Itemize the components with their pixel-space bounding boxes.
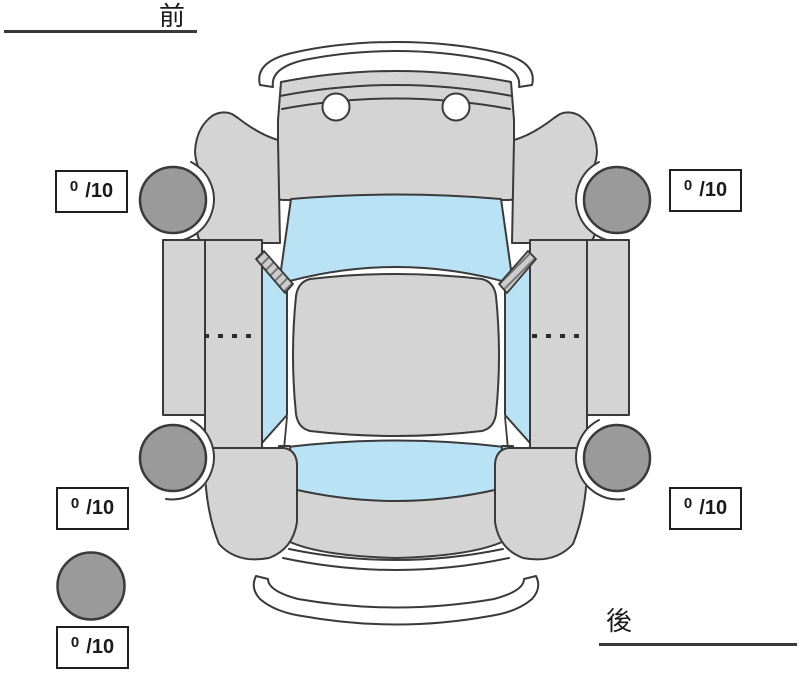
tire-tread-inspection-diagram: 前 後 0 /10 0 /10 0 /10 0 /10 0 /10 <box>0 0 800 675</box>
tread-depth-rear-right[interactable]: 0 /10 <box>669 487 742 530</box>
door-panel-right-outer <box>587 240 629 415</box>
tread-value: 0 <box>684 495 692 512</box>
tread-value: 0 <box>71 495 79 512</box>
rear-underline <box>599 643 797 646</box>
roof-panel <box>293 274 499 436</box>
tread-value: 0 <box>71 634 79 651</box>
tread-max: /10 <box>699 497 727 520</box>
tread-depth-front-left[interactable]: 0 /10 <box>55 170 128 213</box>
tread-value: 0 <box>70 178 78 195</box>
front-label: 前 <box>159 3 186 29</box>
door-panel-right-inner <box>530 240 587 448</box>
headlight-left <box>323 94 350 121</box>
quarter-panel-rear-right <box>495 448 587 559</box>
c-pillar-line-left <box>284 417 287 449</box>
tread-depth-rear-left[interactable]: 0 /10 <box>56 487 129 530</box>
car-top-view-diagram <box>0 0 800 675</box>
quarter-panel-rear-left <box>205 448 297 559</box>
door-panel-left-outer <box>163 240 205 415</box>
front-underline <box>4 30 197 33</box>
rear-bumper <box>254 576 539 625</box>
tire-rear-left <box>140 425 206 491</box>
door-panel-left-inner <box>205 240 262 448</box>
tread-max: /10 <box>86 497 114 520</box>
c-pillar-line-right <box>505 417 508 449</box>
tread-max: /10 <box>699 179 727 202</box>
tire-spare <box>58 553 125 620</box>
tread-max: /10 <box>85 180 113 203</box>
tire-front-right <box>584 167 650 233</box>
tread-value: 0 <box>684 177 692 194</box>
tread-depth-front-right[interactable]: 0 /10 <box>669 169 742 212</box>
tire-rear-right <box>584 425 650 491</box>
windshield-glass <box>279 195 513 285</box>
tire-front-left <box>140 167 206 233</box>
tread-max: /10 <box>86 636 114 659</box>
headlight-right <box>443 94 470 121</box>
tread-depth-spare[interactable]: 0 /10 <box>56 626 129 669</box>
rear-label: 後 <box>606 608 633 634</box>
